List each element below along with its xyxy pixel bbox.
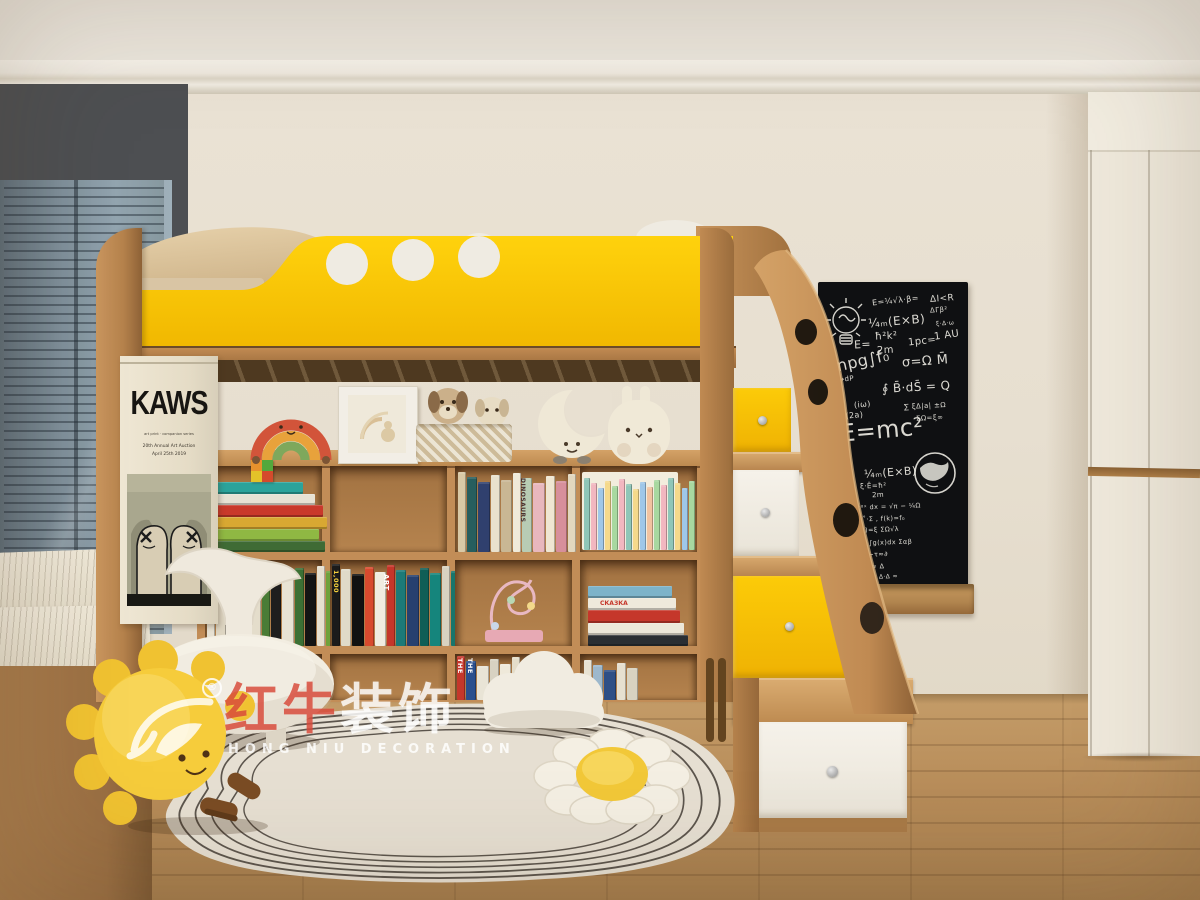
book-spine-art: ART [382, 574, 390, 591]
picture-frame [338, 386, 418, 464]
rainbow-plush [248, 410, 334, 464]
flower-pillow [528, 726, 696, 828]
shelf-cell [580, 466, 697, 552]
bed-right-post [700, 228, 734, 702]
book-series [584, 478, 695, 550]
wardrobe-door-seam [1148, 150, 1150, 756]
ceiling [0, 0, 1200, 64]
shelf-cell-empty [330, 466, 447, 552]
sun-plush [58, 626, 268, 838]
wardrobe [1088, 92, 1200, 756]
wardrobe-top-panel [1088, 92, 1200, 152]
poster-caption: art print · companion series [120, 432, 218, 436]
woven-basket [416, 424, 512, 462]
bed-slats [150, 360, 702, 382]
drawer-knob [827, 766, 838, 777]
book-title-skazka: СКАЗКА [600, 600, 628, 607]
stair-stringer-panel [740, 240, 932, 720]
book-spine-the-red: THE [456, 658, 464, 674]
moon-plush [534, 382, 612, 464]
poster-title: KAWS [120, 384, 218, 423]
wardrobe-left-edge [1090, 150, 1092, 756]
shelf-cell [205, 466, 322, 552]
shelf-cell: 1,000 ART [330, 560, 447, 646]
poster-line1: 20th Annual Art Auction [120, 444, 218, 449]
shelf-cell: DINOSAURS [455, 466, 572, 552]
wardrobe-floor-shadow [1080, 752, 1200, 762]
poster-line2: April 25th 2019 [120, 452, 218, 457]
bead-maze-toy [481, 566, 547, 644]
kids-bedroom-scene: E=¼√λ·β=ΔI<RΔΓβ²¼ₘ(E×B)ξ·Δ·ω1 AUE=ħ²k²2m… [0, 0, 1200, 900]
wardrobe-handle-groove [1088, 467, 1200, 478]
frame-art [348, 395, 406, 453]
stair-base-strip [757, 818, 907, 832]
book-row [458, 472, 576, 552]
shelf-cell [455, 560, 572, 646]
stair-drawer-white-bottom [757, 722, 907, 818]
cloud-plush [468, 640, 620, 736]
book-spine-dinosaurs: DINOSAURS [519, 478, 526, 522]
wall-corner-shade [1046, 94, 1090, 706]
bunny-plush [606, 384, 672, 464]
book-row [332, 564, 474, 646]
poster-rod [120, 362, 218, 364]
shelf-cell: СКАЗКА [580, 560, 697, 646]
yellow-guard-rail [100, 228, 740, 354]
